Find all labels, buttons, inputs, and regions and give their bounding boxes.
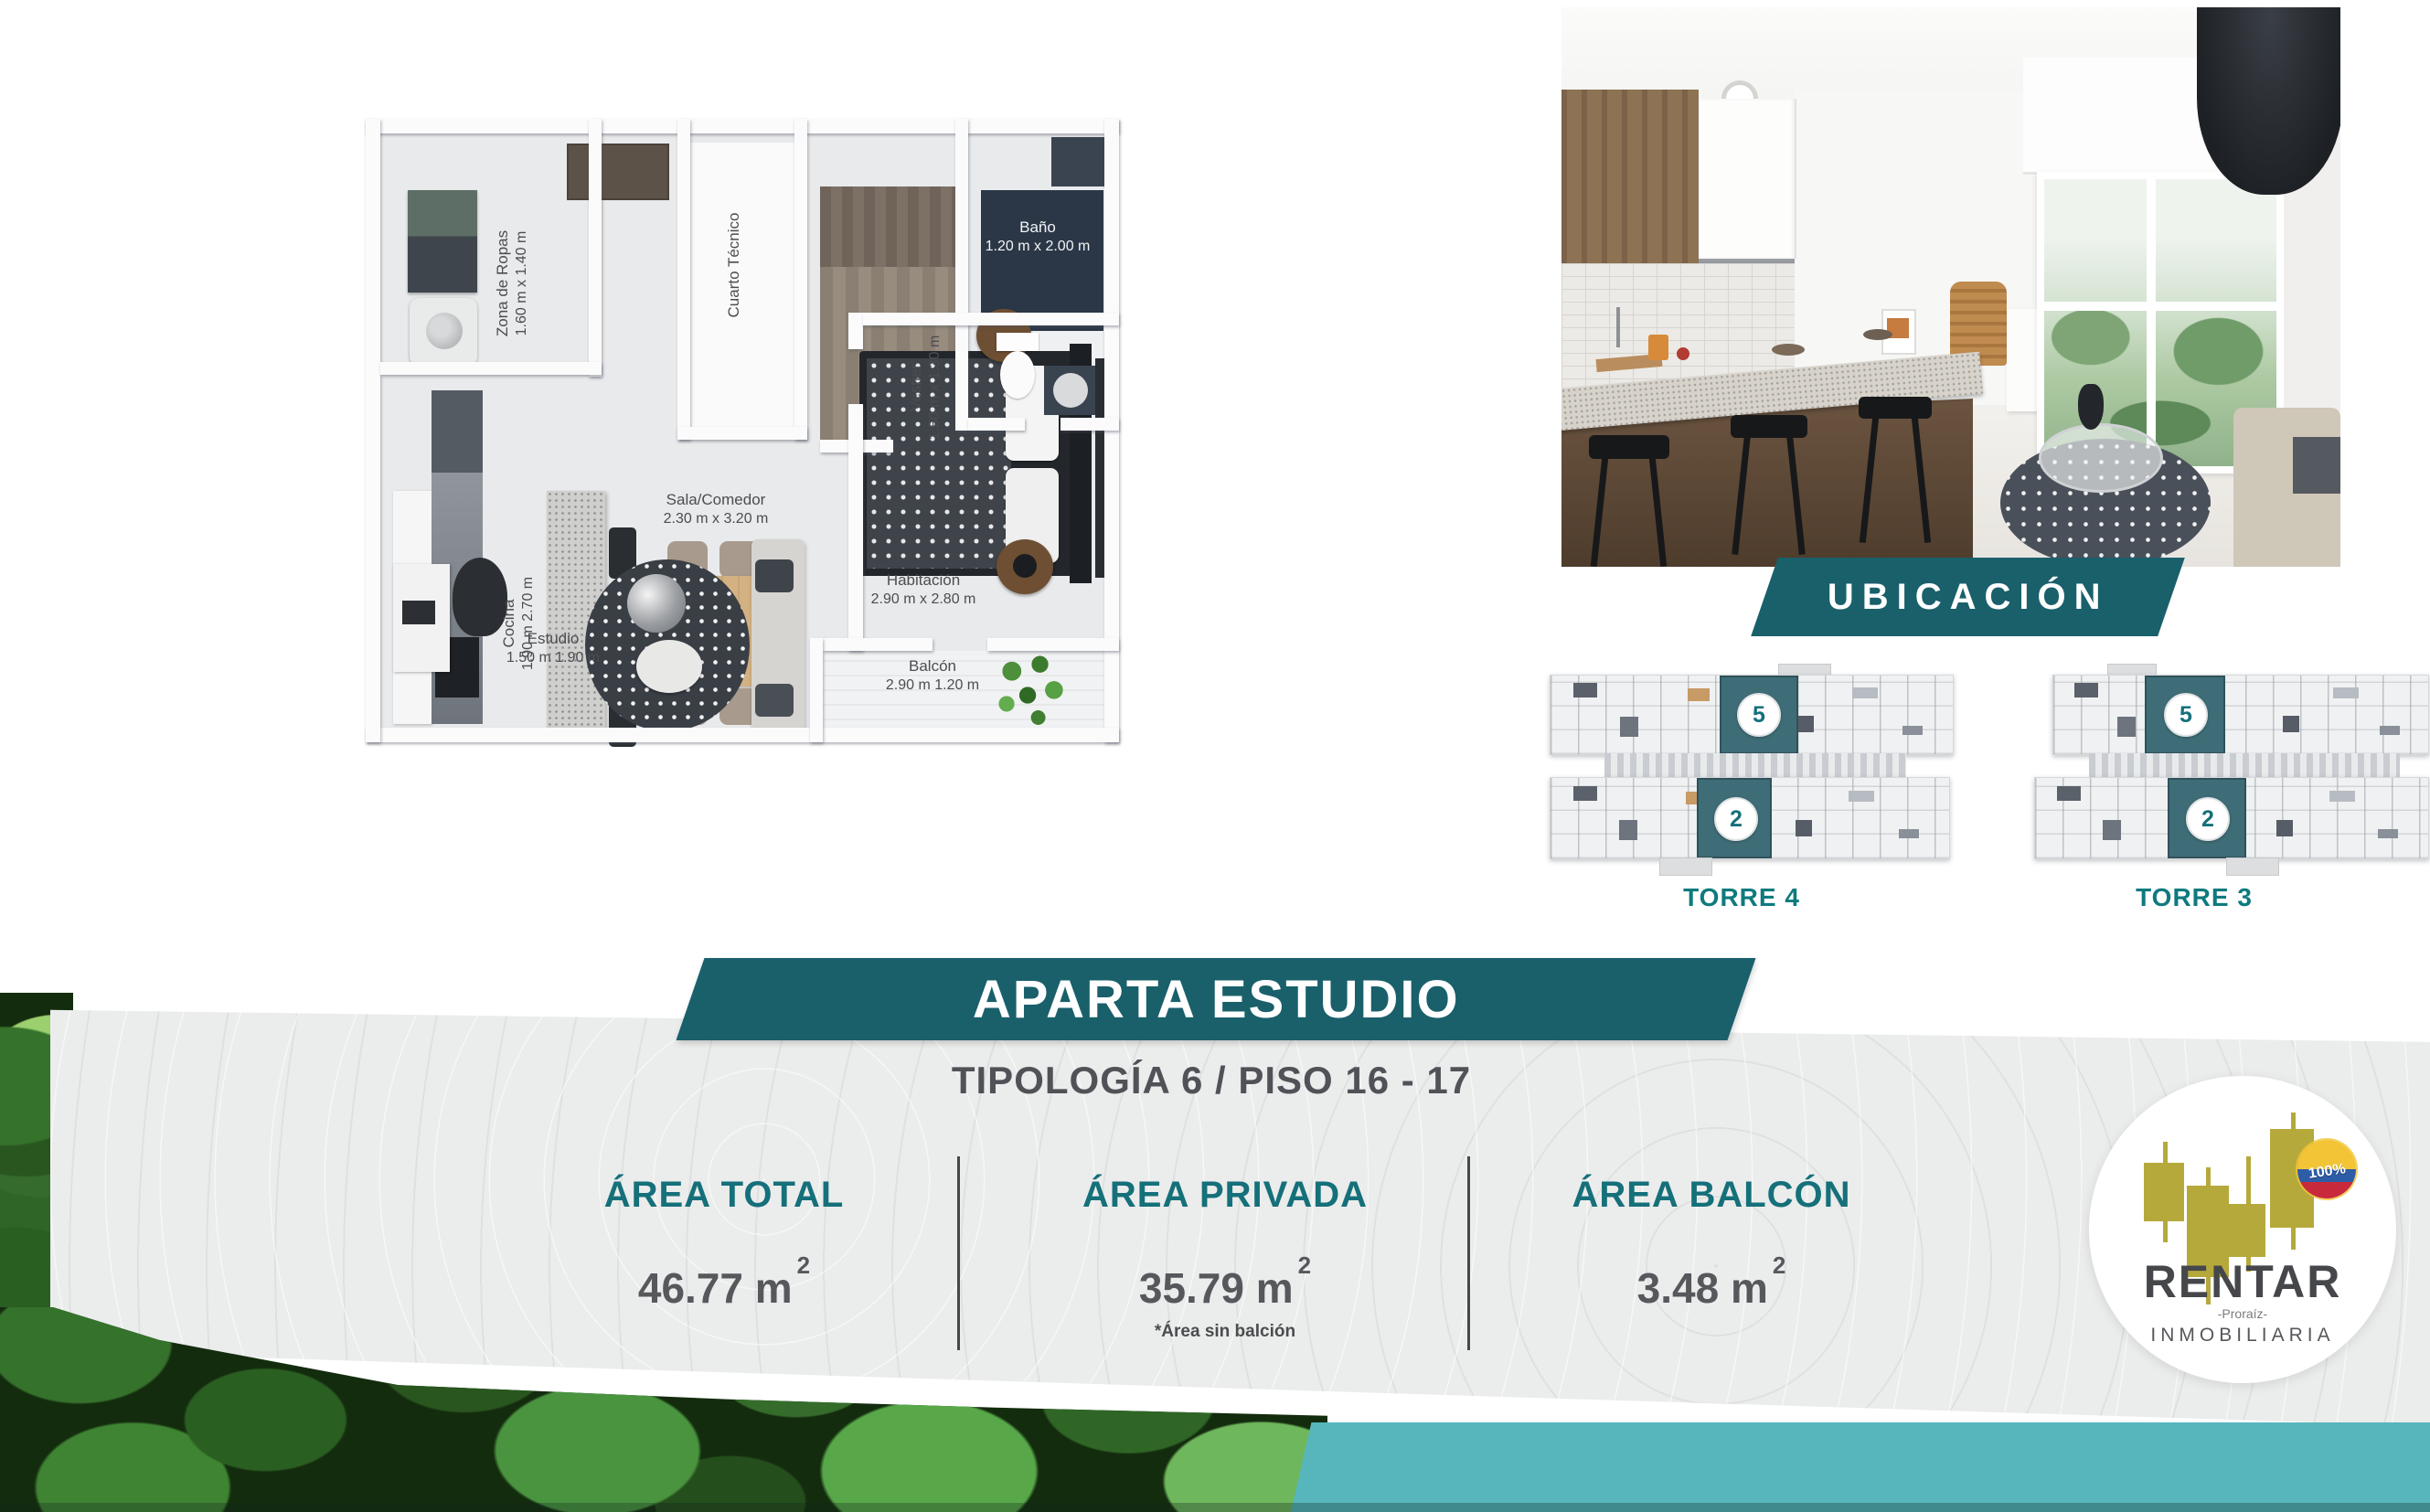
room-label-bano: Baño 1.20 m x 2.00 m xyxy=(974,218,1102,258)
room-name: Vestier xyxy=(906,319,926,456)
area-privada-label: ÁREA PRIVADA xyxy=(1051,1175,1399,1216)
apple xyxy=(1677,347,1689,360)
room-name: Zona de Ropas xyxy=(493,215,513,352)
logo-type: INMOBILIARIA xyxy=(2089,1325,2396,1347)
tipologia-text: TIPOLOGÍA 6 / PISO 16 - 17 xyxy=(952,1059,1471,1102)
tower-wing xyxy=(2052,675,2429,755)
room-dims: 1.50 m x 1.30 m xyxy=(926,319,945,456)
wall xyxy=(366,119,1119,133)
vase xyxy=(2078,384,2104,430)
room-dims: 1.20 m x 2.00 m xyxy=(974,238,1102,257)
wall xyxy=(794,119,807,440)
sofa-pillow xyxy=(755,684,794,717)
room-name: Cuarto Técnico xyxy=(724,197,744,334)
table-lamp xyxy=(1013,554,1037,578)
wall xyxy=(677,427,807,440)
room-label-estudio: Estudio 1.50 m 1.90 m xyxy=(489,629,617,669)
bath-counter xyxy=(1051,137,1112,186)
wall xyxy=(380,362,602,375)
area-divider xyxy=(957,1156,960,1350)
wall xyxy=(968,418,1025,431)
toilet xyxy=(997,333,1039,351)
room-dims: 1.50 m 1.90 m xyxy=(489,649,617,668)
ubicacion-banner: UBICACIÓN xyxy=(1751,558,2185,636)
badge-percent-text: 100% xyxy=(2307,1161,2346,1183)
orange-cup xyxy=(1648,335,1668,360)
area-total-label: ÁREA TOTAL xyxy=(569,1175,879,1216)
unit-badge: 2 xyxy=(1714,797,1758,841)
wall xyxy=(810,638,823,742)
pendant-lamp xyxy=(2197,7,2340,195)
laundry-cabinet xyxy=(408,190,477,293)
room-label-balcon: Balcón 2.90 m 1.20 m xyxy=(869,656,997,697)
room-name: Cocina xyxy=(499,555,519,692)
bottom-shadow-strip xyxy=(0,1503,2430,1512)
laptop xyxy=(402,601,435,624)
area-privada-value: 35.79 m2 xyxy=(1051,1263,1399,1313)
fridge xyxy=(432,390,483,473)
torre-label: TORRE 4 xyxy=(1650,883,1833,912)
room-label-vestier: Vestier 1.50 m x 1.30 m xyxy=(906,319,946,456)
toilet-bowl xyxy=(1000,351,1035,399)
wall xyxy=(987,638,1119,651)
room-dims: 1.60 m x 1.40 m xyxy=(513,215,532,352)
logo-tagline: -Proraíz- xyxy=(2089,1306,2396,1321)
interior-photo xyxy=(1561,7,2340,567)
stair-stub xyxy=(2226,857,2279,876)
room-label-sala-comedor: Sala/Comedor 2.30 m x 3.20 m xyxy=(652,490,780,530)
aparta-estudio-banner: APARTA ESTUDIO xyxy=(677,958,1756,1040)
window-mullion-v xyxy=(2147,179,2156,466)
wall xyxy=(366,728,1119,742)
bowl xyxy=(1863,329,1892,340)
unit-number: 2 xyxy=(1730,806,1743,833)
room-name: Baño xyxy=(974,218,1102,238)
aparta-estudio-title: APARTA ESTUDIO xyxy=(973,969,1460,1030)
room-dims: 1.90 m 2.70 m xyxy=(519,555,538,692)
round-side-table xyxy=(636,640,702,693)
colombia-100-badge: 100% xyxy=(2297,1140,2356,1198)
room-label-cuarto-tecnico: Cuarto Técnico xyxy=(724,197,761,334)
balcony-plant xyxy=(986,645,1073,731)
pendant-sphere xyxy=(627,574,686,633)
room-dims: 2.30 m x 3.20 m xyxy=(652,510,780,529)
wall xyxy=(1060,418,1119,431)
unit-number: 2 xyxy=(2201,806,2214,833)
wall xyxy=(677,119,690,440)
vestier-cabinet xyxy=(820,186,955,267)
unit-number: 5 xyxy=(2180,702,2192,729)
ubicacion-title: UBICACIÓN xyxy=(1828,577,2109,618)
torre-label: TORRE 3 xyxy=(2103,883,2286,912)
tower-torre-4: 5 2 TORRE 4 xyxy=(1550,675,1979,914)
stool-seat xyxy=(1859,397,1932,419)
unit-badge: 5 xyxy=(1737,693,1781,737)
wall xyxy=(863,313,1119,325)
area-total-value: 46.77 m2 xyxy=(569,1263,879,1313)
bowl xyxy=(1772,344,1805,356)
unit-number: 5 xyxy=(1753,702,1765,729)
stool-seat xyxy=(1589,435,1669,459)
floor-plan: Zona de Ropas 1.60 m x 1.40 m Cuarto Téc… xyxy=(366,102,1134,757)
area-column-balcon: ÁREA BALCÓN 3.48 m2 xyxy=(1556,1175,1867,1313)
room-label-cocina: Cocina 1.90 m 2.70 m xyxy=(499,555,539,692)
logo-brand: RENTAR xyxy=(2089,1255,2396,1308)
area-column-total: ÁREA TOTAL 46.77 m2 xyxy=(569,1175,879,1313)
sofa-throw xyxy=(2293,437,2340,494)
tower-wing xyxy=(2034,777,2429,859)
teal-band xyxy=(1291,1422,2430,1512)
unit-badge: 2 xyxy=(2186,797,2230,841)
room-dims: 2.90 m x 2.80 m xyxy=(859,591,987,610)
faucet xyxy=(1616,307,1620,347)
areas-row: ÁREA TOTAL 46.77 m2 ÁREA PRIVADA 35.79 m… xyxy=(512,1156,1883,1358)
tower-corridor xyxy=(1604,753,1906,777)
wall xyxy=(823,638,933,651)
room-label-zona-de-ropas: Zona de Ropas 1.60 m x 1.40 m xyxy=(493,215,529,352)
wall xyxy=(589,119,602,377)
rentar-logo: 100% RENTAR -Proraíz- INMOBILIARIA xyxy=(2089,1076,2396,1383)
stool-seat xyxy=(1731,415,1807,438)
washer-door xyxy=(426,313,463,349)
top-wardrobe xyxy=(567,144,669,200)
tower-corridor xyxy=(2089,753,2400,777)
wall xyxy=(366,119,380,742)
upper-cabinet-white xyxy=(1699,99,1796,259)
unit-badge: 5 xyxy=(2164,693,2208,737)
room-dims: 2.90 m 1.20 m xyxy=(869,676,997,696)
area-balcon-value: 3.48 m2 xyxy=(1556,1263,1867,1313)
candlestick-bar xyxy=(2144,1163,2184,1221)
wall xyxy=(848,313,863,349)
torre-name: TORRE 4 xyxy=(1683,883,1800,911)
room-name: Balcón xyxy=(869,656,997,676)
wall xyxy=(848,404,863,651)
tower-torre-3: 5 2 TORRE 3 xyxy=(2034,675,2430,914)
room-label-habitacion: Habitación 2.90 m x 2.80 m xyxy=(859,570,987,611)
area-privada-note: *Área sin balción xyxy=(1051,1322,1399,1342)
area-column-privada: ÁREA PRIVADA 35.79 m2 *Área sin balción xyxy=(1051,1175,1399,1342)
window-mullion-h xyxy=(2044,302,2276,311)
brochure-page: Zona de Ropas 1.60 m x 1.40 m Cuarto Téc… xyxy=(0,0,2430,1512)
sofa-pillow xyxy=(755,559,794,592)
room-name: Estudio xyxy=(489,629,617,649)
wall xyxy=(955,119,968,431)
room-name: Habitación xyxy=(859,570,987,591)
coffee-table xyxy=(2039,423,2163,493)
candlestick-bar xyxy=(2229,1204,2265,1257)
area-divider xyxy=(1467,1156,1470,1350)
tipologia-subtitle: TIPOLOGÍA 6 / PISO 16 - 17 xyxy=(663,1059,1760,1102)
stair-stub xyxy=(1659,857,1712,876)
room-name: Sala/Comedor xyxy=(652,490,780,510)
upper-cabinet-wood xyxy=(1561,90,1699,263)
sink-bowl xyxy=(1053,373,1088,408)
torre-name: TORRE 3 xyxy=(2136,883,2253,911)
area-balcon-label: ÁREA BALCÓN xyxy=(1556,1175,1867,1216)
